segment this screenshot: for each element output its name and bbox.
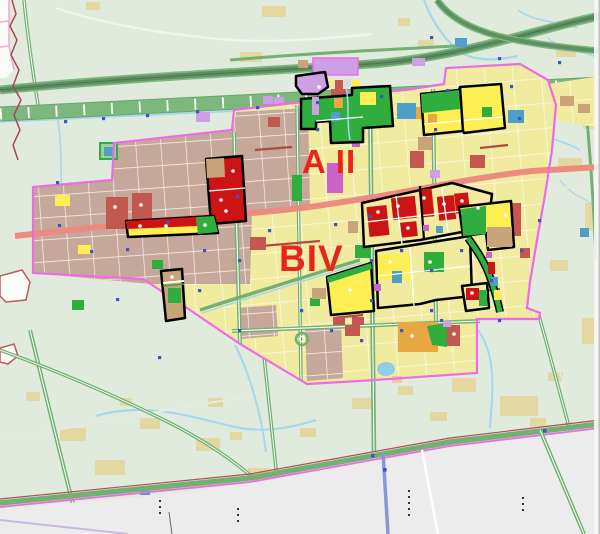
zoning-map-canvas[interactable]: A II BIV — [0, 0, 600, 534]
zone-purple-north — [296, 72, 328, 94]
zone-yellow-northeast — [421, 84, 505, 135]
zone-red-west — [206, 156, 246, 224]
pond — [377, 362, 395, 376]
map-viewport: A II BIV — [0, 0, 600, 534]
zone-red-southeast — [462, 283, 489, 311]
district-label-a: A II — [302, 143, 356, 180]
viewport-edge — [594, 0, 600, 534]
district-label-b: BIV — [279, 238, 344, 279]
